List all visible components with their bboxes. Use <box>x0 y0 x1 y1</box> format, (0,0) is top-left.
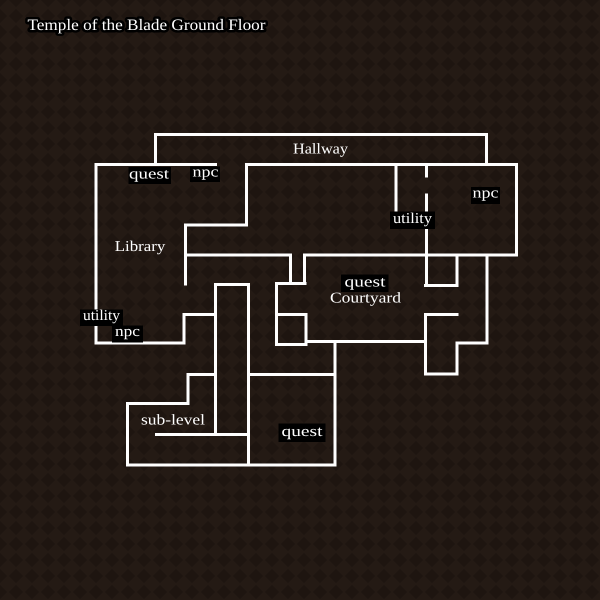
svg-text:Library: Library <box>115 239 166 255</box>
svg-text:utility: utility <box>83 308 121 324</box>
svg-text:npc: npc <box>473 186 499 202</box>
svg-text:quest: quest <box>129 167 170 183</box>
svg-text:Hallway: Hallway <box>293 142 349 158</box>
svg-text:utility: utility <box>393 211 433 227</box>
svg-text:Courtyard: Courtyard <box>330 291 402 307</box>
svg-text:Temple of the Blade Ground Flo: Temple of the Blade Ground Floor <box>28 17 267 34</box>
svg-text:npc: npc <box>115 324 140 340</box>
svg-text:sub-level: sub-level <box>141 413 205 429</box>
svg-text:quest: quest <box>282 424 324 440</box>
svg-text:quest: quest <box>345 275 387 291</box>
svg-text:npc: npc <box>193 165 219 181</box>
